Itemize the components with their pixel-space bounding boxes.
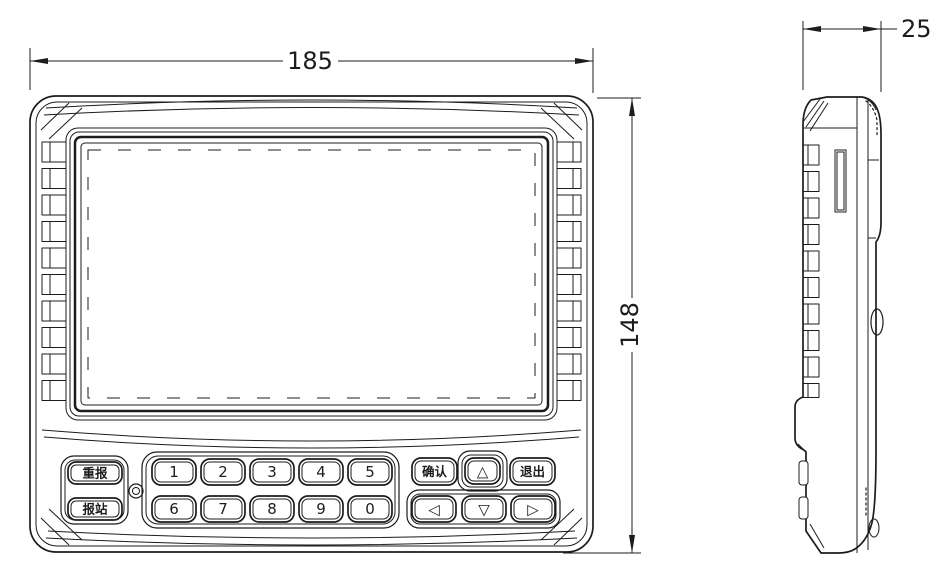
key-5-label: 5 bbox=[365, 463, 375, 481]
dimension-depth-value: 25 bbox=[901, 15, 932, 43]
key-7-label: 7 bbox=[218, 500, 228, 518]
side-grip-ribs bbox=[803, 145, 819, 398]
nav-key-group: ◁ ▽ ▷ bbox=[407, 490, 560, 528]
key-4-label: 4 bbox=[316, 463, 326, 481]
key-5: 5 bbox=[348, 459, 392, 485]
grip-ribs-right bbox=[554, 142, 581, 401]
key-exit: 退出 bbox=[510, 458, 555, 485]
arrow-left-icon: ◁ bbox=[428, 501, 440, 519]
key-6: 6 bbox=[152, 496, 196, 522]
key-9: 9 bbox=[299, 496, 343, 522]
arrow-up-icon: △ bbox=[477, 463, 489, 481]
dimension-height: 148 bbox=[563, 98, 644, 553]
key-arrow-right: ▷ bbox=[511, 496, 555, 522]
indicator-hole bbox=[129, 484, 143, 498]
screen bbox=[66, 128, 557, 420]
side-hole bbox=[871, 309, 883, 335]
up-key-group: △ bbox=[458, 451, 507, 491]
key-0: 0 bbox=[348, 496, 392, 522]
key-8-label: 8 bbox=[267, 500, 277, 518]
dimension-width-value: 185 bbox=[287, 47, 333, 75]
key-3: 3 bbox=[250, 459, 294, 485]
key-arrow-up: △ bbox=[465, 458, 500, 484]
key-6-label: 6 bbox=[169, 500, 179, 518]
key-0-label: 0 bbox=[365, 500, 375, 518]
dimension-height-value: 148 bbox=[616, 302, 644, 348]
key-confirm-label: 确认 bbox=[422, 464, 448, 479]
key-3-label: 3 bbox=[267, 463, 277, 481]
side-view bbox=[795, 97, 883, 553]
keypad-panel: 重报 报站 1 bbox=[42, 430, 581, 528]
key-2: 2 bbox=[201, 459, 245, 485]
key-4: 4 bbox=[299, 459, 343, 485]
key-confirm: 确认 bbox=[412, 458, 457, 485]
key-7: 7 bbox=[201, 496, 245, 522]
front-view: 重报 报站 1 bbox=[30, 96, 593, 552]
key-8: 8 bbox=[250, 496, 294, 522]
grip-ribs-left bbox=[42, 142, 69, 401]
key-announce: 报站 bbox=[68, 498, 122, 520]
arrow-right-icon: ▷ bbox=[527, 501, 539, 519]
key-announce-label: 报站 bbox=[82, 502, 108, 517]
engineering-drawing: 重报 报站 1 bbox=[0, 0, 941, 568]
dimension-depth: 25 bbox=[803, 15, 932, 92]
key-arrow-down: ▽ bbox=[462, 496, 506, 522]
arrow-down-icon: ▽ bbox=[478, 501, 490, 519]
key-replay: 重报 bbox=[68, 462, 122, 484]
dimension-width: 185 bbox=[30, 47, 593, 93]
key-exit-label: 退出 bbox=[520, 464, 545, 479]
side-vent-slot bbox=[835, 150, 846, 212]
key-9-label: 9 bbox=[316, 500, 326, 518]
drawing-canvas: 重报 报站 1 bbox=[0, 0, 941, 568]
key-replay-label: 重报 bbox=[82, 466, 108, 481]
key-arrow-left: ◁ bbox=[412, 496, 456, 522]
left-key-group: 重报 报站 bbox=[61, 456, 128, 524]
key-1: 1 bbox=[152, 459, 196, 485]
key-1-label: 1 bbox=[169, 463, 179, 481]
numeric-key-group: 1 2 3 4 bbox=[142, 452, 399, 528]
key-2-label: 2 bbox=[218, 463, 228, 481]
